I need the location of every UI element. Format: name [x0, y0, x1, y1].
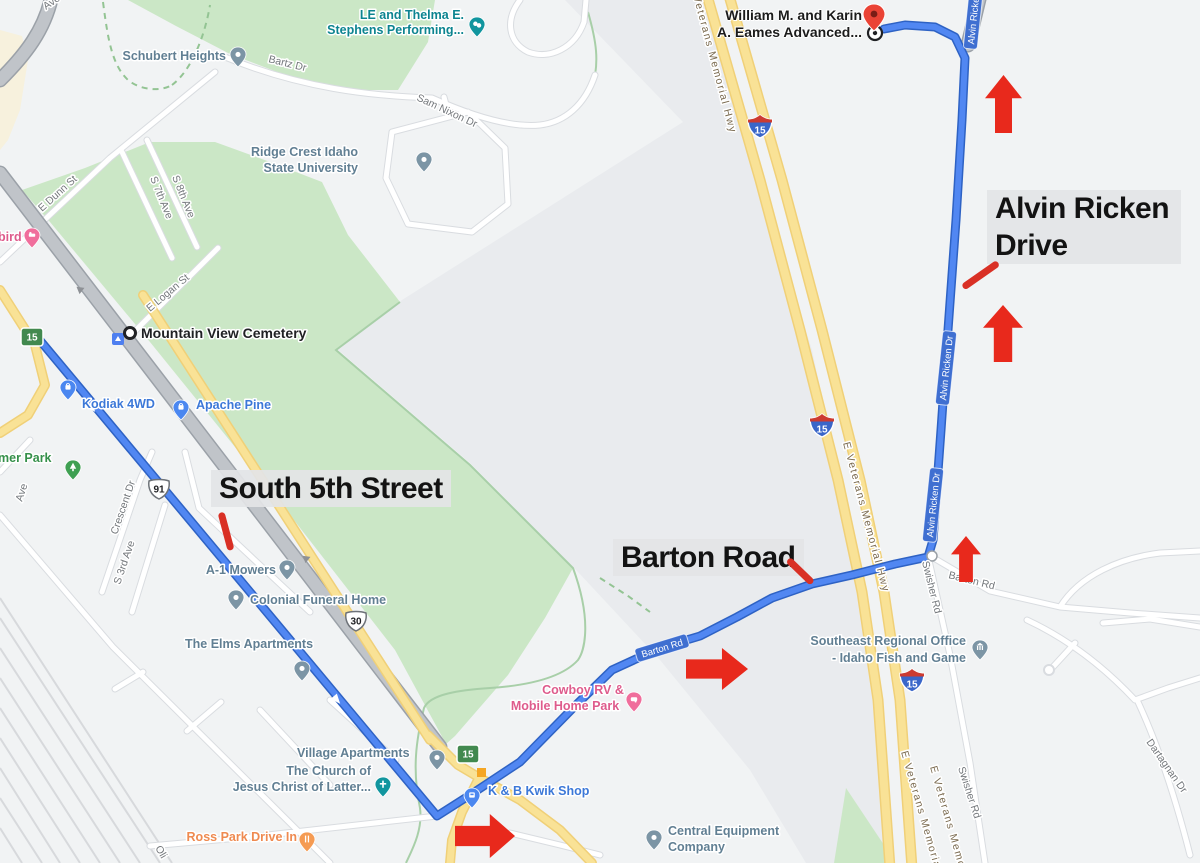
poi-label-kwik-shop[interactable]: K & B Kwik Shop [488, 784, 590, 798]
poi-label-cowboy-rv[interactable]: Mobile Home Park [511, 699, 619, 713]
poi-label-central-equipment[interactable]: Company [668, 840, 725, 854]
i15-text: 15 [754, 126, 766, 137]
poi-label-stephens[interactable]: LE and Thelma E. [360, 8, 464, 22]
poi-label-ridge-crest[interactable]: Ridge Crest Idaho [251, 145, 358, 159]
bl15-text: 15 [26, 333, 38, 344]
poi-label-mer-park[interactable]: mer Park [0, 451, 52, 465]
business-loop-15-shield: 15 [21, 328, 43, 346]
us91-text: 91 [153, 485, 165, 496]
map-canvas[interactable]: 15 15 15 15 15 91 30 Bartz Dr [0, 0, 1200, 863]
construction-marker [477, 768, 486, 777]
business-loop-15-shield: 15 [457, 745, 479, 763]
poi-label-church[interactable]: The Church of [286, 764, 372, 778]
us30-text: 30 [350, 617, 362, 628]
poi-label-fish-and-game[interactable]: - Idaho Fish and Game [832, 651, 966, 665]
destination-label[interactable]: William M. and Karin A. Eames Advanced..… [640, 7, 862, 41]
bl15-text: 15 [462, 750, 474, 761]
poi-label-bird[interactable]: bird [0, 230, 22, 244]
poi-label-apache[interactable]: Apache Pine [196, 398, 271, 412]
poi-label-a1-mowers[interactable]: A-1 Mowers [206, 563, 276, 577]
i15-text: 15 [816, 425, 828, 436]
destination-label-line1: William M. and Karin [640, 7, 862, 24]
poi-label-colonial[interactable]: Colonial Funeral Home [250, 593, 386, 607]
callout-barton-road: Barton Road [613, 539, 804, 576]
cemetery-place-icon[interactable] [125, 328, 136, 339]
poi-label-cemetery[interactable]: Mountain View Cemetery [141, 325, 307, 341]
callout-south-5th-street: South 5th Street [211, 470, 451, 507]
callout-alvin-ricken-drive: Alvin Ricken Drive [987, 190, 1181, 264]
poi-label-kodiak[interactable]: Kodiak 4WD [82, 397, 155, 411]
poi-label-ross-park[interactable]: Ross Park Drive In [187, 830, 297, 844]
transit-stop-icon[interactable] [112, 333, 124, 345]
poi-label-cowboy-rv[interactable]: Cowboy RV & [542, 683, 624, 697]
poi-label-stephens[interactable]: Stephens Performing... [327, 23, 464, 37]
destination-bullseye-dot [873, 31, 877, 35]
poi-label-elms[interactable]: The Elms Apartments [185, 637, 313, 651]
poi-label-church[interactable]: Jesus Christ of Latter... [233, 780, 371, 794]
poi-label-fish-and-game[interactable]: Southeast Regional Office [810, 634, 966, 648]
i15-text: 15 [906, 680, 918, 691]
map-screenshot[interactable]: 15 15 15 15 15 91 30 Bartz Dr [0, 0, 1200, 863]
destination-label-line2: A. Eames Advanced... [640, 24, 862, 41]
poi-label-schubert[interactable]: Schubert Heights [123, 49, 227, 63]
poi-label-central-equipment[interactable]: Central Equipment [668, 824, 780, 838]
poi-label-village[interactable]: Village Apartments [297, 746, 410, 760]
poi-label-ridge-crest[interactable]: State University [264, 161, 359, 175]
